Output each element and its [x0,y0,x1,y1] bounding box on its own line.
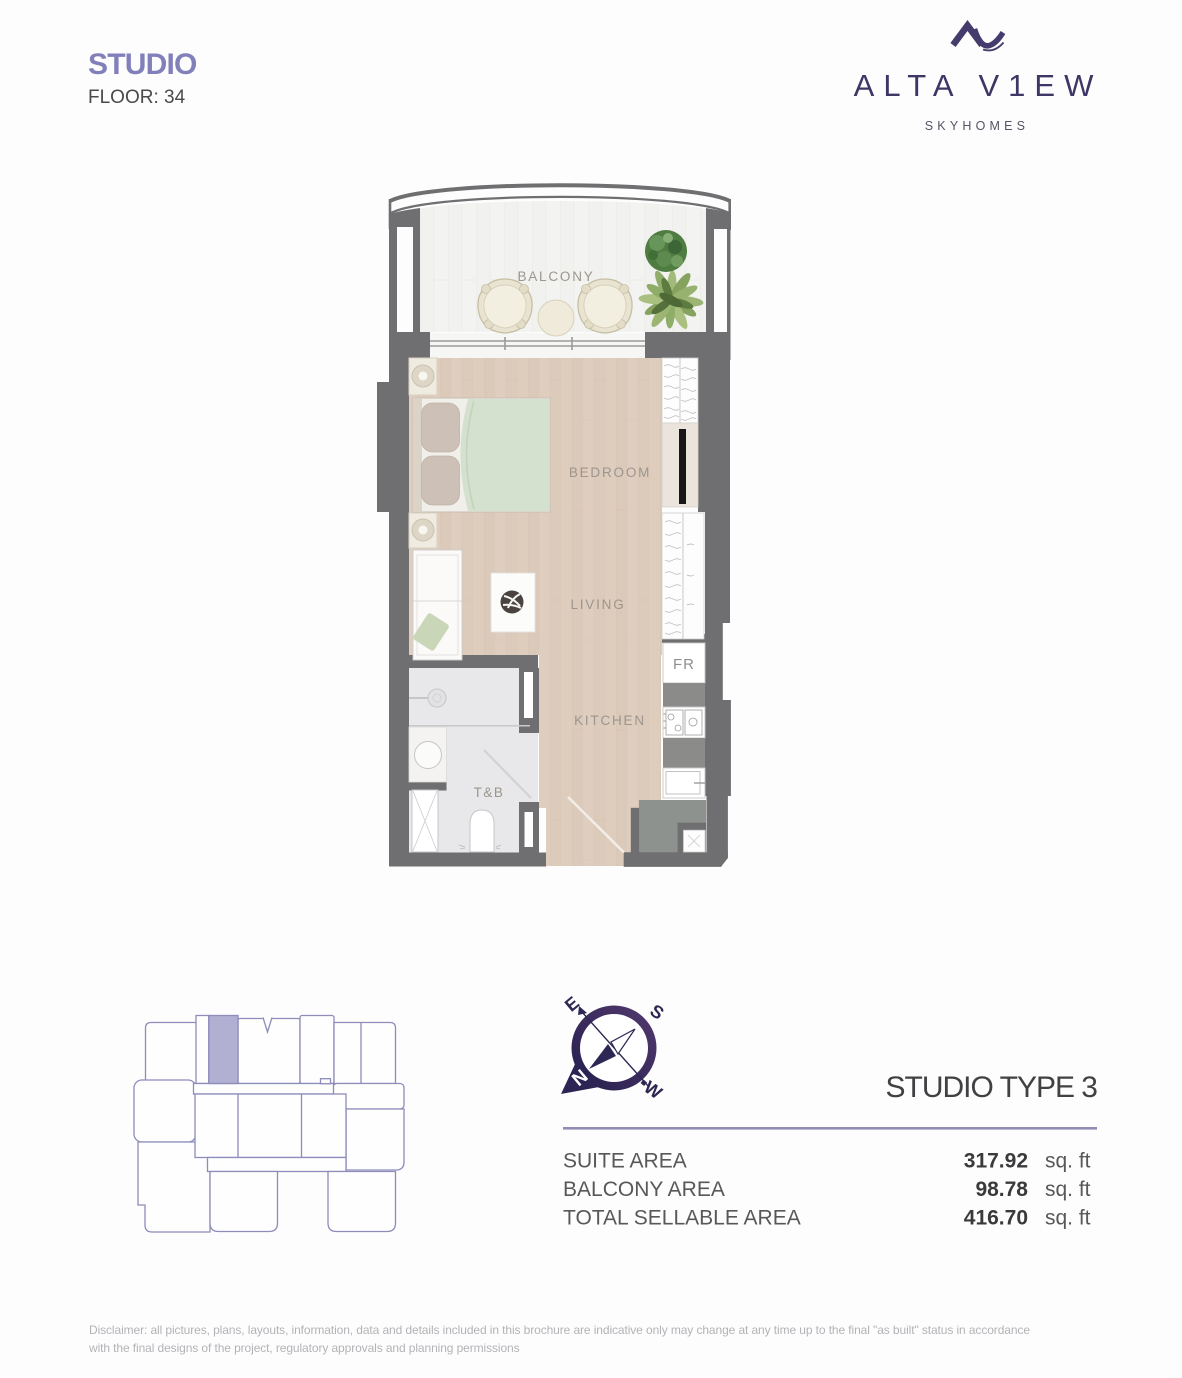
svg-text:317.92: 317.92 [964,1150,1028,1173]
svg-text:ALTA V1EW: ALTA V1EW [854,68,1103,103]
svg-text:SUITE AREA: SUITE AREA [563,1150,687,1173]
svg-text:FLOOR: 34: FLOOR: 34 [88,87,186,108]
svg-text:Disclaimer: all pictures, plan: Disclaimer: all pictures, plans, layouts… [89,1323,1030,1337]
svg-text:sq. ft: sq. ft [1045,1207,1091,1230]
svg-text:sq. ft: sq. ft [1045,1150,1091,1173]
svg-text:BEDROOM: BEDROOM [569,465,651,480]
svg-text:BALCONY AREA: BALCONY AREA [563,1178,725,1201]
svg-text:STUDIO TYPE 3: STUDIO TYPE 3 [885,1071,1097,1104]
svg-text:T&B: T&B [474,785,505,800]
svg-text:STUDIO: STUDIO [88,48,197,81]
svg-text:98.78: 98.78 [975,1178,1028,1201]
svg-text:LIVING: LIVING [570,597,625,612]
svg-text:KITCHEN: KITCHEN [574,713,646,728]
svg-text:416.70: 416.70 [964,1207,1028,1230]
svg-text:SKYHOMES: SKYHOMES [925,119,1029,133]
svg-text:with the final designs of the: with the final designs of the project, r… [88,1341,520,1355]
svg-text:TOTAL SELLABLE AREA: TOTAL SELLABLE AREA [563,1207,801,1230]
svg-text:FR: FR [673,656,695,673]
svg-text:sq. ft: sq. ft [1045,1178,1091,1201]
svg-text:BALCONY: BALCONY [517,269,594,284]
